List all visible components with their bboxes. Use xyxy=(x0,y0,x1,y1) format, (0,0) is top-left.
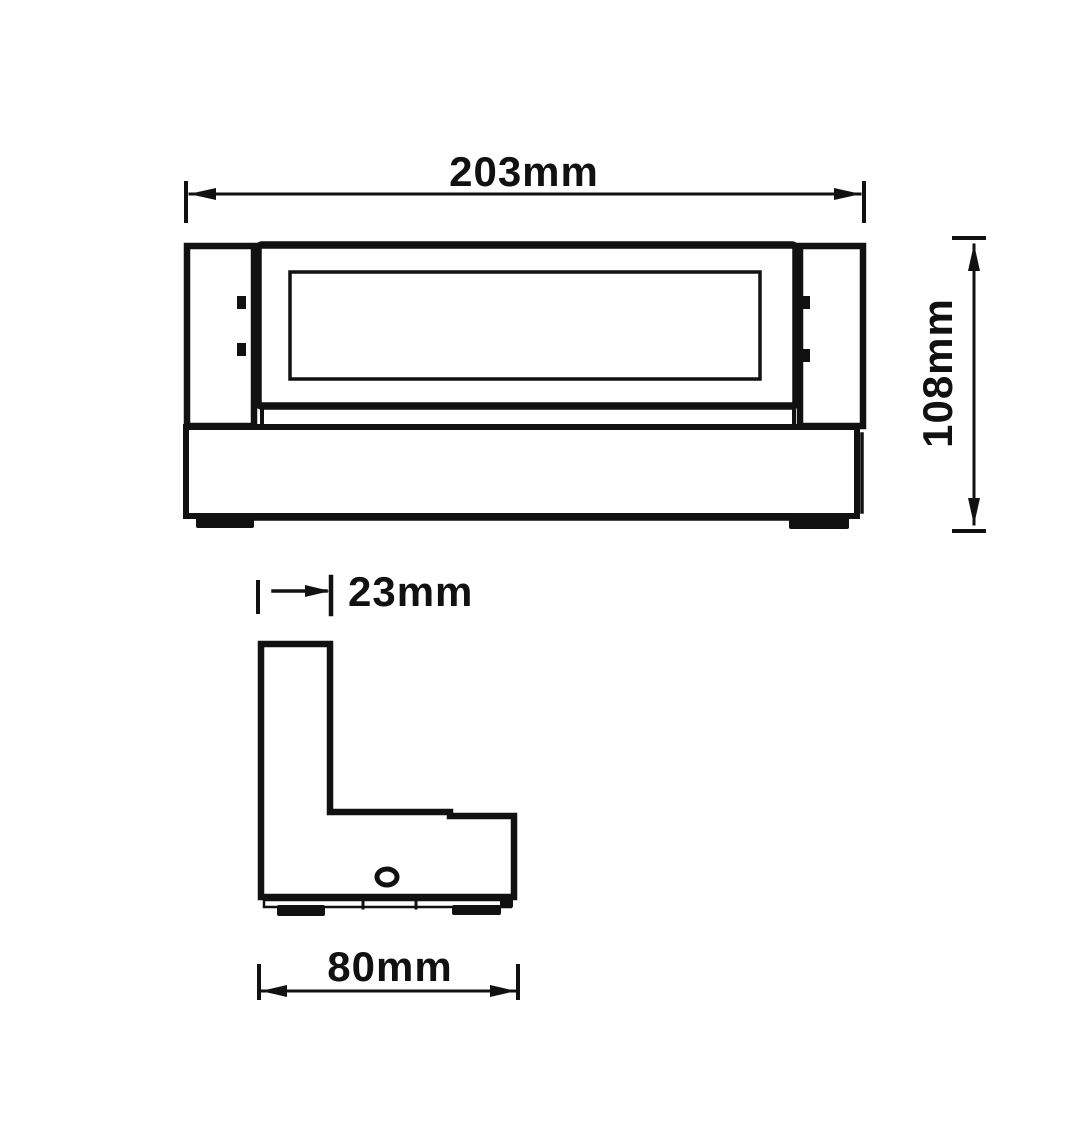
left-end-cap-notch-upper xyxy=(237,296,246,309)
left-end-cap xyxy=(187,246,254,426)
base-housing xyxy=(186,427,857,516)
depth-top-dimension-arrow-icon xyxy=(305,585,330,597)
depth-bottom-dimension: 80mm xyxy=(259,943,518,998)
depth-bottom-dimension-left-arrow-icon xyxy=(261,985,287,997)
wall-lamp-dimension-drawing: 203mm xyxy=(0,0,1078,1144)
width-dimension-label: 203mm xyxy=(449,148,599,195)
front-right-foot xyxy=(789,516,849,529)
side-right-foot xyxy=(452,905,501,915)
side-right-corner-mark xyxy=(500,899,513,907)
depth-bottom-dimension-label: 80mm xyxy=(327,943,452,990)
depth-top-dimension-label: 23mm xyxy=(348,568,473,615)
height-dimension-label: 108mm xyxy=(914,298,961,448)
side-view: 23mm 80mm xyxy=(258,568,518,998)
cable-hole xyxy=(377,869,397,885)
side-profile-body xyxy=(261,644,514,916)
right-end-cap xyxy=(800,246,863,426)
front-left-foot xyxy=(196,516,254,528)
front-view: 203mm xyxy=(186,148,984,531)
width-dimension-left-arrow-icon xyxy=(189,188,216,200)
depth-top-dimension: 23mm xyxy=(258,568,473,615)
right-end-cap-notch-upper xyxy=(801,296,810,309)
l-profile-outline xyxy=(261,644,514,897)
technical-drawing-canvas: 203mm xyxy=(0,0,1078,1144)
side-left-foot xyxy=(277,905,325,916)
left-end-cap-notch-lower xyxy=(237,343,246,356)
right-end-cap-notch-lower xyxy=(801,349,810,362)
height-dimension-bottom-arrow-icon xyxy=(968,498,980,525)
width-dimension-right-arrow-icon xyxy=(834,188,861,200)
height-dimension: 108mm xyxy=(914,238,984,531)
depth-bottom-dimension-right-arrow-icon xyxy=(490,985,516,997)
front-view-body xyxy=(186,245,863,529)
width-dimension: 203mm xyxy=(186,148,864,221)
diffuser-inner-window xyxy=(290,272,760,379)
height-dimension-top-arrow-icon xyxy=(968,244,980,271)
